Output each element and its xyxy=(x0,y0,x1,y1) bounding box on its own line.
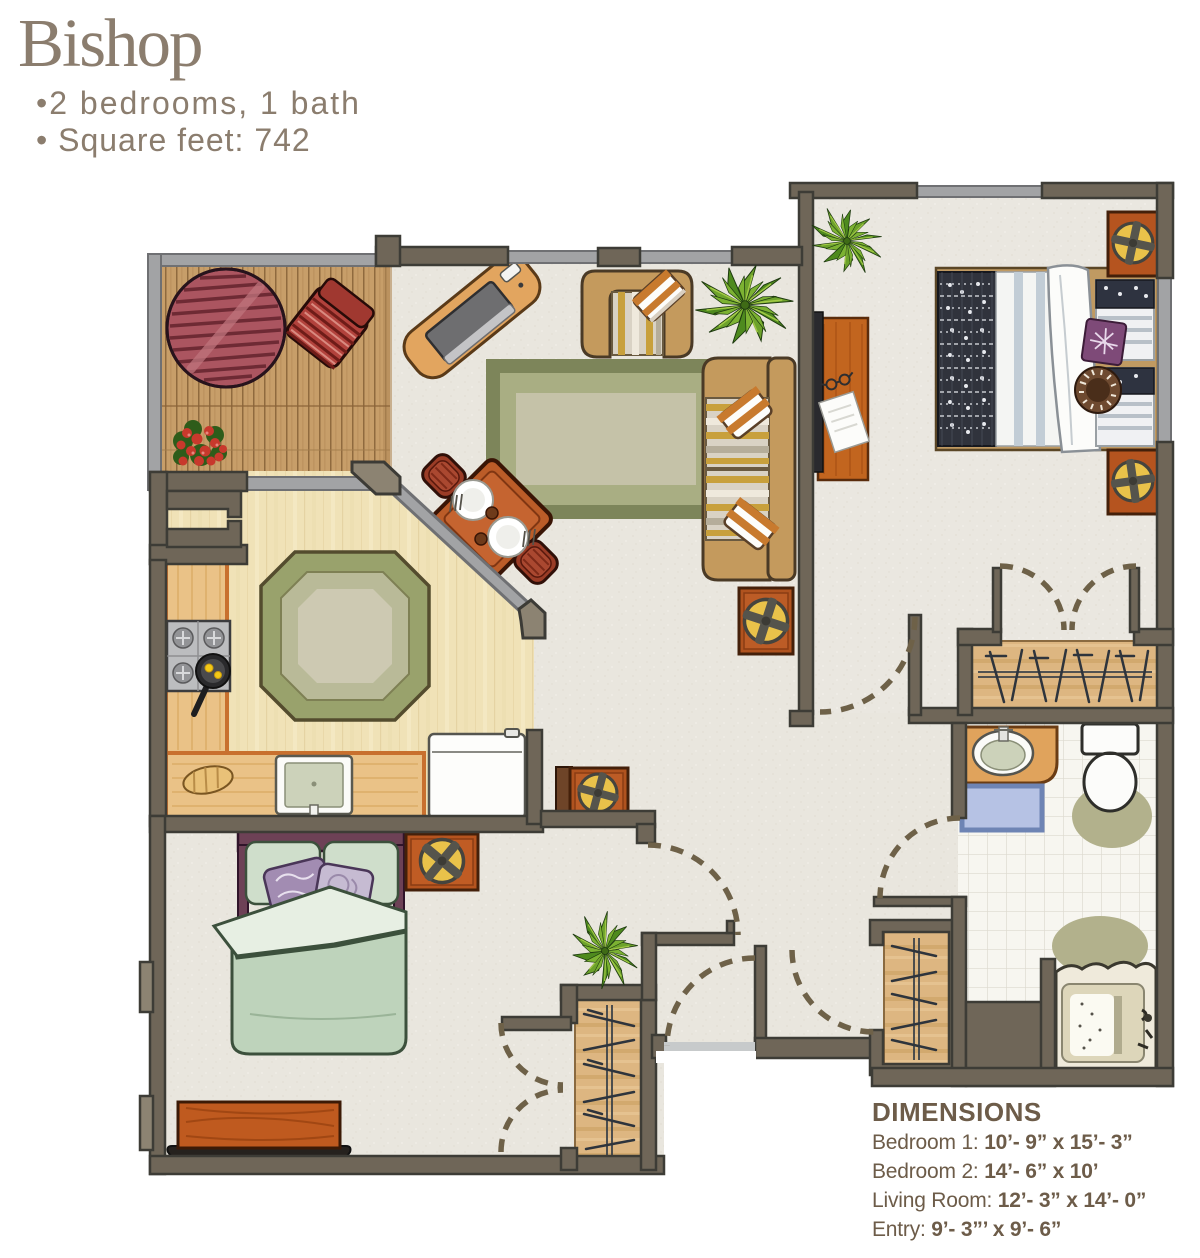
svg-text:Bedroom 2: 14’- 6” x 10’: Bedroom 2: 14’- 6” x 10’ xyxy=(872,1160,1098,1183)
svg-text:Bishop: Bishop xyxy=(18,5,202,81)
svg-text:Entry: 9’- 3”’ x 9’- 6”: Entry: 9’- 3”’ x 9’- 6” xyxy=(872,1218,1061,1241)
svg-text:• Square feet: 742: • Square feet: 742 xyxy=(36,122,311,158)
svg-text:•2 bedrooms, 1 bath: •2 bedrooms, 1 bath xyxy=(36,85,361,121)
svg-text:DIMENSIONS: DIMENSIONS xyxy=(872,1097,1042,1127)
svg-text:Bedroom 1: 10’- 9” x 15’- 3”: Bedroom 1: 10’- 9” x 15’- 3” xyxy=(872,1131,1133,1154)
svg-text:Living Room: 12’- 3” x 14’- 0”: Living Room: 12’- 3” x 14’- 0” xyxy=(872,1189,1146,1212)
